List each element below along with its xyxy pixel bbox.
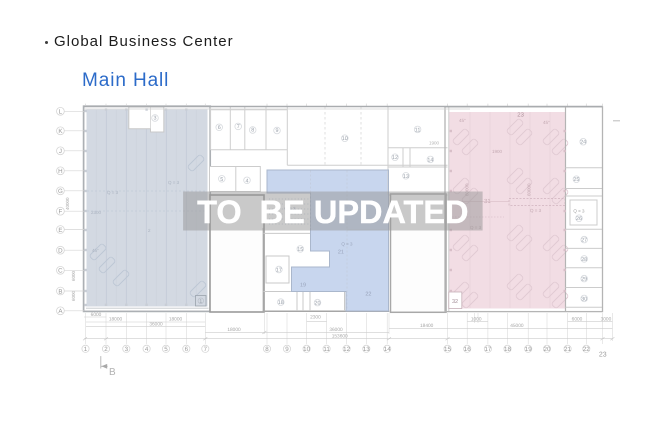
svg-text:45°: 45° [459,118,466,123]
svg-text:8: 8 [251,128,254,134]
svg-text:20: 20 [315,301,321,307]
svg-text:22: 22 [365,292,371,298]
svg-text:14: 14 [384,346,391,353]
svg-text:J: J [59,148,62,155]
svg-text:8: 8 [265,346,269,353]
svg-text:E: E [58,227,62,234]
svg-text:12: 12 [392,155,398,161]
svg-text:21: 21 [338,250,344,256]
svg-text:16: 16 [464,346,471,353]
svg-text:2300: 2300 [91,210,102,215]
svg-text:25: 25 [573,177,579,183]
svg-text:22: 22 [583,346,590,353]
svg-text:H: H [58,168,62,175]
svg-text:14: 14 [427,157,433,163]
svg-text:4: 4 [246,178,249,184]
svg-text:18000: 18000 [109,317,123,323]
svg-text:26: 26 [576,216,582,222]
svg-text:F: F [59,209,63,216]
svg-text:3000: 3000 [601,316,612,322]
svg-text:3: 3 [154,116,157,122]
svg-text:C: C [58,268,63,275]
svg-text:60000: 60000 [527,183,532,196]
svg-text:17: 17 [276,268,282,274]
svg-text:9: 9 [285,346,289,353]
svg-text:5: 5 [164,346,168,353]
svg-text:36000: 36000 [329,327,343,333]
svg-text:Q = 3: Q = 3 [107,190,119,195]
svg-text:6000: 6000 [71,270,76,281]
svg-text:19: 19 [525,346,532,353]
svg-text:Q = 3: Q = 3 [168,180,180,185]
svg-text:6000: 6000 [71,290,76,301]
svg-text:32: 32 [452,299,458,305]
svg-text:3: 3 [125,346,129,353]
svg-text:Q = 3: Q = 3 [530,208,542,213]
svg-text:D: D [58,248,63,255]
svg-text:18: 18 [504,346,511,353]
svg-text:23: 23 [517,112,524,119]
svg-text:45°: 45° [92,248,99,253]
svg-text:Q = 3: Q = 3 [341,242,353,247]
svg-text:36000: 36000 [149,321,163,327]
svg-text:G: G [58,188,63,195]
svg-text:9: 9 [276,128,279,134]
svg-text:5: 5 [220,177,223,183]
svg-text:6000: 6000 [91,312,102,318]
svg-text:4: 4 [145,346,149,353]
svg-text:19: 19 [300,283,306,289]
svg-text:1: 1 [84,346,88,353]
svg-text:15: 15 [297,247,303,253]
svg-text:21: 21 [564,346,571,353]
svg-text:L: L [59,109,63,116]
svg-text:40000: 40000 [65,197,70,210]
svg-text:20: 20 [544,346,551,353]
svg-text:18: 18 [278,300,284,306]
svg-text:1: 1 [199,299,202,305]
svg-text:6: 6 [218,125,221,131]
svg-text:7: 7 [237,124,240,130]
svg-text:12: 12 [343,346,350,353]
svg-text:153600: 153600 [332,333,348,339]
svg-text:15: 15 [444,346,451,353]
svg-text:18400: 18400 [420,323,434,329]
svg-text:30: 30 [581,296,587,302]
svg-text:13: 13 [403,174,409,180]
svg-text:10: 10 [342,136,348,142]
svg-text:17: 17 [484,346,491,353]
svg-text:45°: 45° [543,120,550,125]
svg-text:B: B [109,367,116,378]
svg-text:24: 24 [580,140,586,146]
svg-text:27: 27 [581,238,587,244]
svg-text:11: 11 [323,346,330,353]
svg-text:Q = 3: Q = 3 [573,208,585,213]
svg-text:2: 2 [104,346,108,353]
svg-text:1900: 1900 [429,141,440,146]
svg-text:13: 13 [363,346,370,353]
svg-text:45000: 45000 [510,323,524,329]
svg-text:18000: 18000 [227,327,241,333]
svg-text:23: 23 [599,352,607,359]
svg-text:7: 7 [204,346,208,353]
svg-text:1000: 1000 [471,316,482,322]
svg-text:B: B [58,288,62,295]
svg-text:TO BE UPDATED: TO BE UPDATED [197,194,468,230]
svg-text:18000: 18000 [169,317,183,323]
svg-text:29: 29 [581,277,587,283]
svg-text:11: 11 [415,127,421,133]
svg-text:28: 28 [581,257,587,263]
svg-text:1900: 1900 [492,149,503,154]
svg-text:6: 6 [185,346,189,353]
svg-text:6000: 6000 [572,316,583,322]
svg-text:10: 10 [303,346,310,353]
svg-text:2300: 2300 [310,314,321,320]
